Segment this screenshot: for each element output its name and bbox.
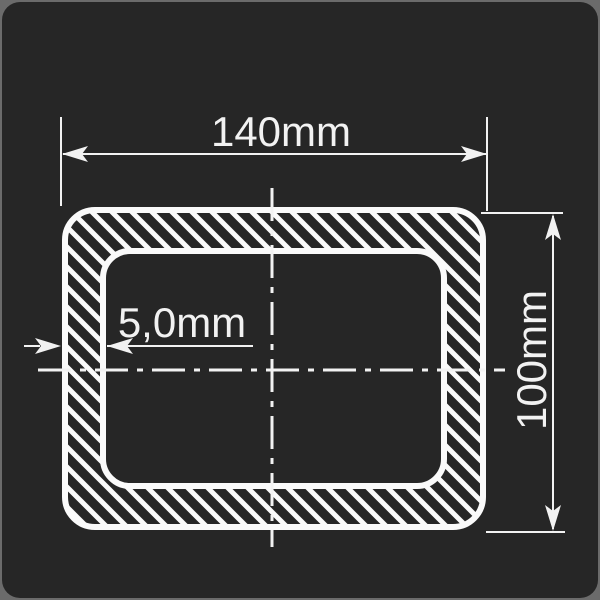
technical-drawing: 140mm 100mm 5,0mm (0, 0, 600, 600)
thickness-dimension-label: 5,0mm (118, 299, 246, 346)
width-dimension-label: 140mm (211, 108, 351, 155)
height-dimension-label: 100mm (508, 290, 555, 430)
drawing-canvas: 140mm 100mm 5,0mm (0, 0, 600, 600)
